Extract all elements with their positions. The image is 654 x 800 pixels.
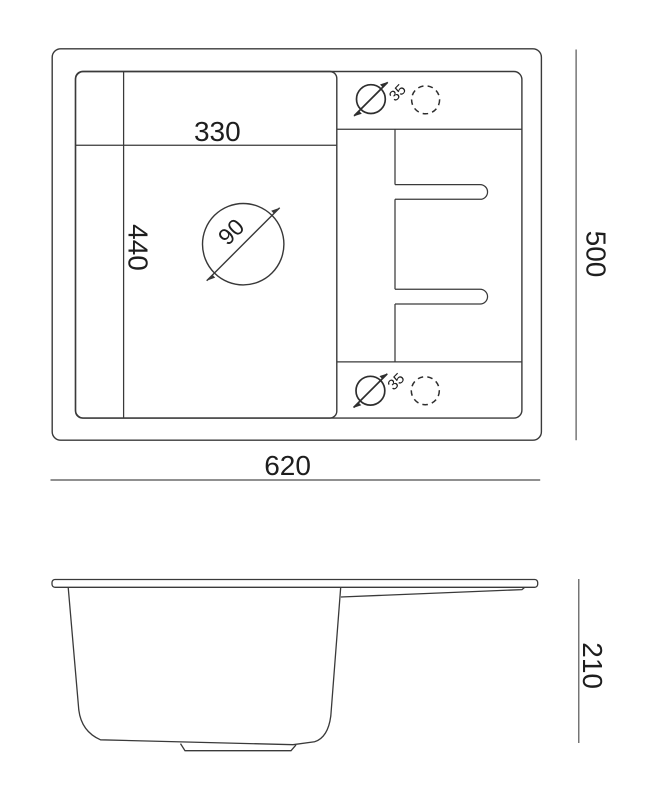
svg-text:440: 440 <box>123 224 154 271</box>
svg-text:620: 620 <box>264 450 311 481</box>
svg-text:35: 35 <box>386 81 410 105</box>
svg-text:500: 500 <box>581 231 612 278</box>
svg-text:35: 35 <box>384 370 408 394</box>
svg-text:210: 210 <box>577 642 608 689</box>
svg-text:330: 330 <box>194 116 241 147</box>
